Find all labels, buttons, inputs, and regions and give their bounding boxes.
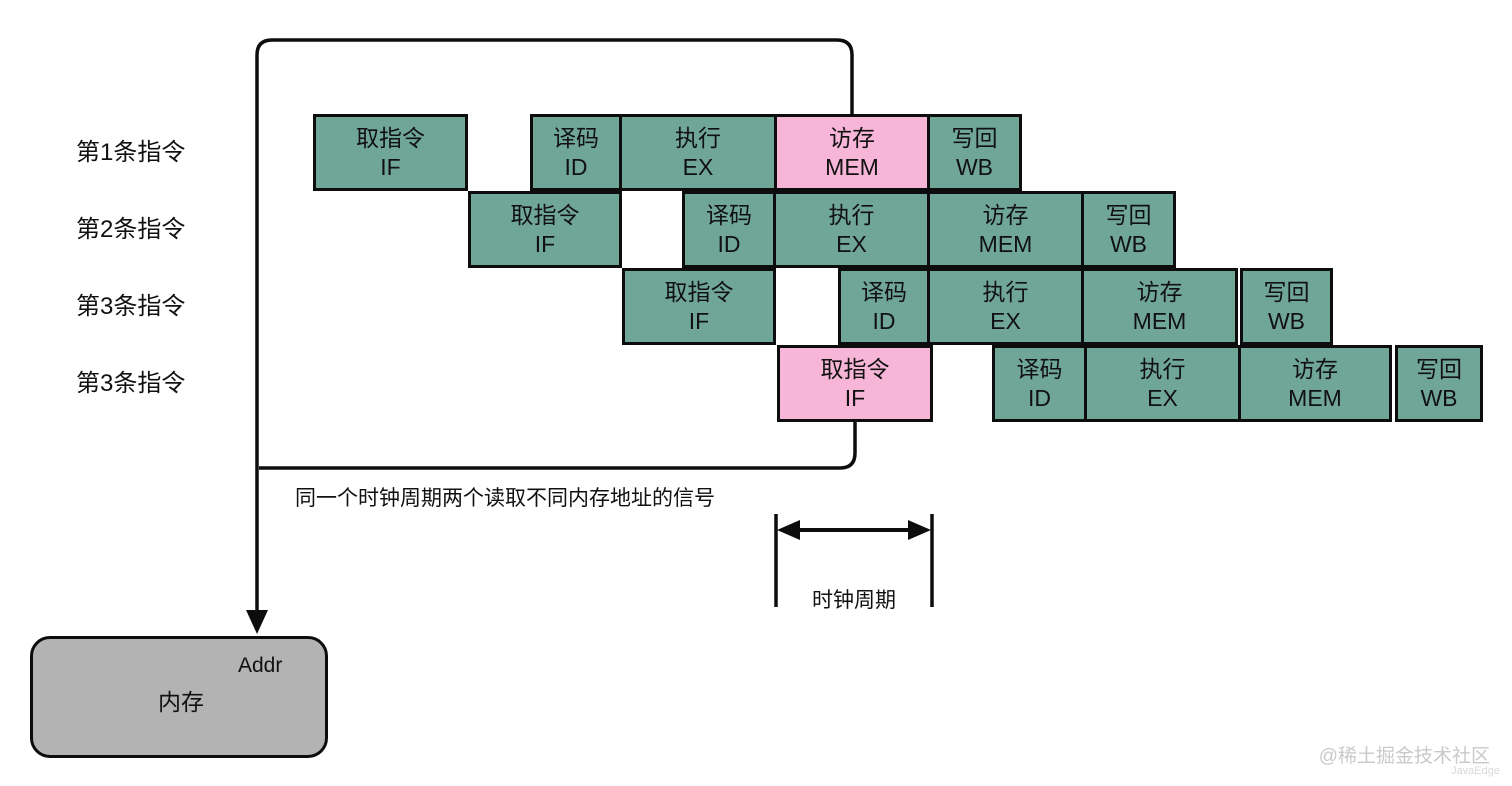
stage-abbr: ID xyxy=(565,153,588,182)
stage-abbr: IF xyxy=(689,307,709,336)
clock-arrowhead-right-icon xyxy=(908,520,931,540)
stage-abbr: MEM xyxy=(1288,384,1342,413)
stage-name: 执行 xyxy=(983,278,1029,307)
stage-abbr: IF xyxy=(845,384,865,413)
stage-name: 执行 xyxy=(1140,355,1186,384)
stage-cell-row1-wb: 写回WB xyxy=(927,114,1022,191)
stage-abbr: IF xyxy=(380,153,400,182)
stage-name: 写回 xyxy=(1264,278,1310,307)
memory-addr-port-label: Addr xyxy=(238,654,282,678)
stage-cell-row4-mem: 访存MEM xyxy=(1238,345,1392,422)
annotation-text: 同一个时钟周期两个读取不同内存地址的信号 xyxy=(295,486,715,512)
stage-abbr: MEM xyxy=(979,230,1033,259)
stage-name: 执行 xyxy=(829,201,875,230)
stage-cell-row3-mem: 访存MEM xyxy=(1081,268,1238,345)
stage-name: 取指令 xyxy=(511,201,580,230)
stage-cell-row3-ex: 执行EX xyxy=(927,268,1084,345)
stage-abbr: WB xyxy=(1110,230,1147,259)
row-label-3: 第3条指令 xyxy=(76,293,196,321)
stage-cell-row2-mem: 访存MEM xyxy=(927,191,1084,268)
row-label-4: 第3条指令 xyxy=(76,370,196,398)
stage-abbr: ID xyxy=(873,307,896,336)
row-label-2: 第2条指令 xyxy=(76,216,196,244)
stage-name: 写回 xyxy=(1416,355,1462,384)
stage-abbr: EX xyxy=(836,230,867,259)
stage-name: 写回 xyxy=(1106,201,1152,230)
stage-cell-row1-id: 译码ID xyxy=(530,114,622,191)
stage-cell-row4-ex: 执行EX xyxy=(1084,345,1241,422)
stage-cell-row2-ex: 执行EX xyxy=(773,191,930,268)
stage-cell-row4-if: 取指令IF xyxy=(777,345,933,422)
stage-abbr: WB xyxy=(956,153,993,182)
stage-abbr: MEM xyxy=(1133,307,1187,336)
clock-cycle-label: 时钟周期 xyxy=(776,584,932,614)
stage-abbr: ID xyxy=(1028,384,1051,413)
stage-name: 译码 xyxy=(553,124,599,153)
stage-cell-row4-wb: 写回WB xyxy=(1395,345,1483,422)
pipeline-diagram: 第1条指令取指令IF译码ID执行EX访存MEM写回WB第2条指令取指令IF译码I… xyxy=(0,0,1512,786)
watermark-author: JavaEdge xyxy=(1451,765,1500,777)
stage-name: 译码 xyxy=(706,201,752,230)
stage-name: 访存 xyxy=(1137,278,1183,307)
stage-cell-row3-wb: 写回WB xyxy=(1240,268,1333,345)
stage-name: 译码 xyxy=(1017,355,1063,384)
stage-abbr: WB xyxy=(1268,307,1305,336)
stage-cell-row3-if: 取指令IF xyxy=(622,268,776,345)
stage-cell-row1-ex: 执行EX xyxy=(619,114,777,191)
stage-cell-row2-if: 取指令IF xyxy=(468,191,622,268)
stage-cell-row2-wb: 写回WB xyxy=(1081,191,1176,268)
stage-cell-row3-id: 译码ID xyxy=(838,268,930,345)
stage-name: 访存 xyxy=(1292,355,1338,384)
stage-name: 访存 xyxy=(829,124,875,153)
stage-abbr: WB xyxy=(1420,384,1457,413)
stage-abbr: EX xyxy=(990,307,1021,336)
stage-name: 写回 xyxy=(952,124,998,153)
stage-name: 取指令 xyxy=(821,355,890,384)
stage-cell-row4-id: 译码ID xyxy=(992,345,1087,422)
if-fetch-connector-bottom xyxy=(259,421,855,468)
stage-cell-row1-if: 取指令IF xyxy=(313,114,468,191)
clock-arrowhead-left-icon xyxy=(777,520,800,540)
stage-abbr: ID xyxy=(718,230,741,259)
row-label-1: 第1条指令 xyxy=(76,139,196,167)
stage-cell-row1-mem: 访存MEM xyxy=(774,114,930,191)
memory-arrowhead-icon xyxy=(246,610,268,634)
stage-name: 执行 xyxy=(675,124,721,153)
stage-name: 取指令 xyxy=(665,278,734,307)
stage-abbr: EX xyxy=(1147,384,1178,413)
watermark-community: @稀土掘金技术社区 xyxy=(1319,741,1490,768)
stage-abbr: MEM xyxy=(825,153,879,182)
stage-name: 译码 xyxy=(861,278,907,307)
memory-label: 内存 xyxy=(158,683,204,717)
stage-cell-row2-id: 译码ID xyxy=(682,191,776,268)
stage-abbr: IF xyxy=(535,230,555,259)
stage-abbr: EX xyxy=(683,153,714,182)
stage-name: 访存 xyxy=(983,201,1029,230)
stage-name: 取指令 xyxy=(356,124,425,153)
